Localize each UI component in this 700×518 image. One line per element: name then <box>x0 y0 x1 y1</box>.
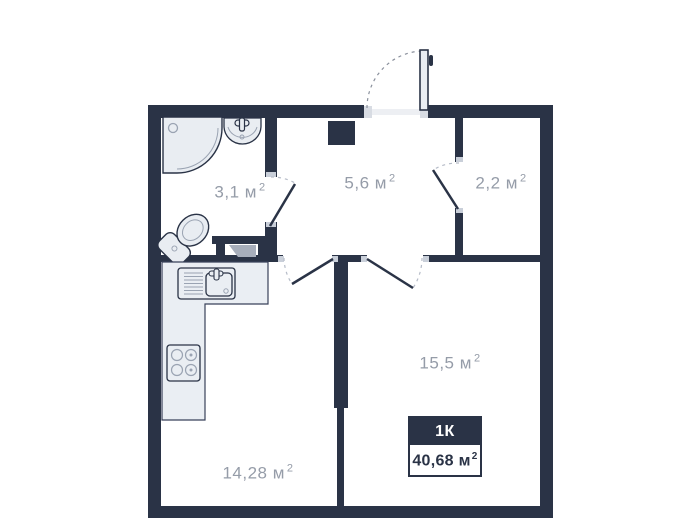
floor-plan: 3,1 м2 5,6 м2 2,2 м2 15,5 м2 14,28 м2 1К… <box>0 0 700 518</box>
wall-bottom <box>148 506 553 518</box>
apartment-total-area: 40,68 м2 <box>410 445 480 475</box>
kitchen-door-leaf <box>292 259 333 284</box>
kitchen-fixtures <box>162 262 268 420</box>
room-label-wardrobe: 2,2 м2 <box>475 173 526 194</box>
room-label-bathroom: 3,1 м2 <box>214 182 265 203</box>
wardrobe-door-jamb-top <box>456 157 463 162</box>
floor-plan-drawing <box>0 0 700 518</box>
walls <box>148 105 553 518</box>
bathroom-door-arc <box>271 177 295 183</box>
wardrobe-door-arc <box>433 163 459 170</box>
wall-top-right <box>427 105 553 118</box>
kitchen-door-arc <box>284 258 292 284</box>
wall-wardrobe-left-lower <box>455 208 463 255</box>
living-door-leaf <box>367 259 413 288</box>
entrance-threshold <box>372 109 420 115</box>
living-door-jamb-right <box>423 256 429 262</box>
room-label-hallway: 5,6 м2 <box>344 173 395 194</box>
room-label-living-room: 15,5 м2 <box>419 353 480 374</box>
bathroom-sink-icon <box>224 118 261 144</box>
apartment-badge: 1К 40,68 м2 <box>408 416 482 477</box>
entrance-door-leaf <box>420 50 428 110</box>
wall-top-left <box>148 105 364 118</box>
entrance-door-handle <box>429 55 433 66</box>
wall-mid-vertical-thin <box>337 408 344 506</box>
wall-wardrobe-left-upper <box>455 118 463 162</box>
entrance-door-arc <box>367 51 424 108</box>
apartment-type: 1К <box>410 418 480 445</box>
wall-mid-horizontal-right <box>423 255 553 262</box>
service-niche <box>212 236 270 258</box>
wardrobe-door-leaf <box>433 170 458 209</box>
stove-icon <box>167 345 200 381</box>
living-door-arc <box>413 258 422 288</box>
kitchen-door-jamb-left <box>278 256 284 262</box>
bathroom-door-jamb-top <box>266 172 276 177</box>
vent-shaft <box>328 121 355 145</box>
room-label-kitchen: 14,28 м2 <box>222 463 293 484</box>
living-door-jamb-left <box>361 256 367 262</box>
wall-left <box>148 105 161 518</box>
wall-bathroom-right-upper <box>265 118 277 177</box>
bathroom-door-leaf <box>270 184 295 226</box>
entrance-jamb-left <box>364 106 372 118</box>
kitchen-sink-icon <box>178 268 235 299</box>
shower-icon <box>163 117 222 173</box>
wall-mid-vertical-thick <box>334 262 348 408</box>
wall-right <box>540 105 553 518</box>
doors <box>270 50 459 288</box>
